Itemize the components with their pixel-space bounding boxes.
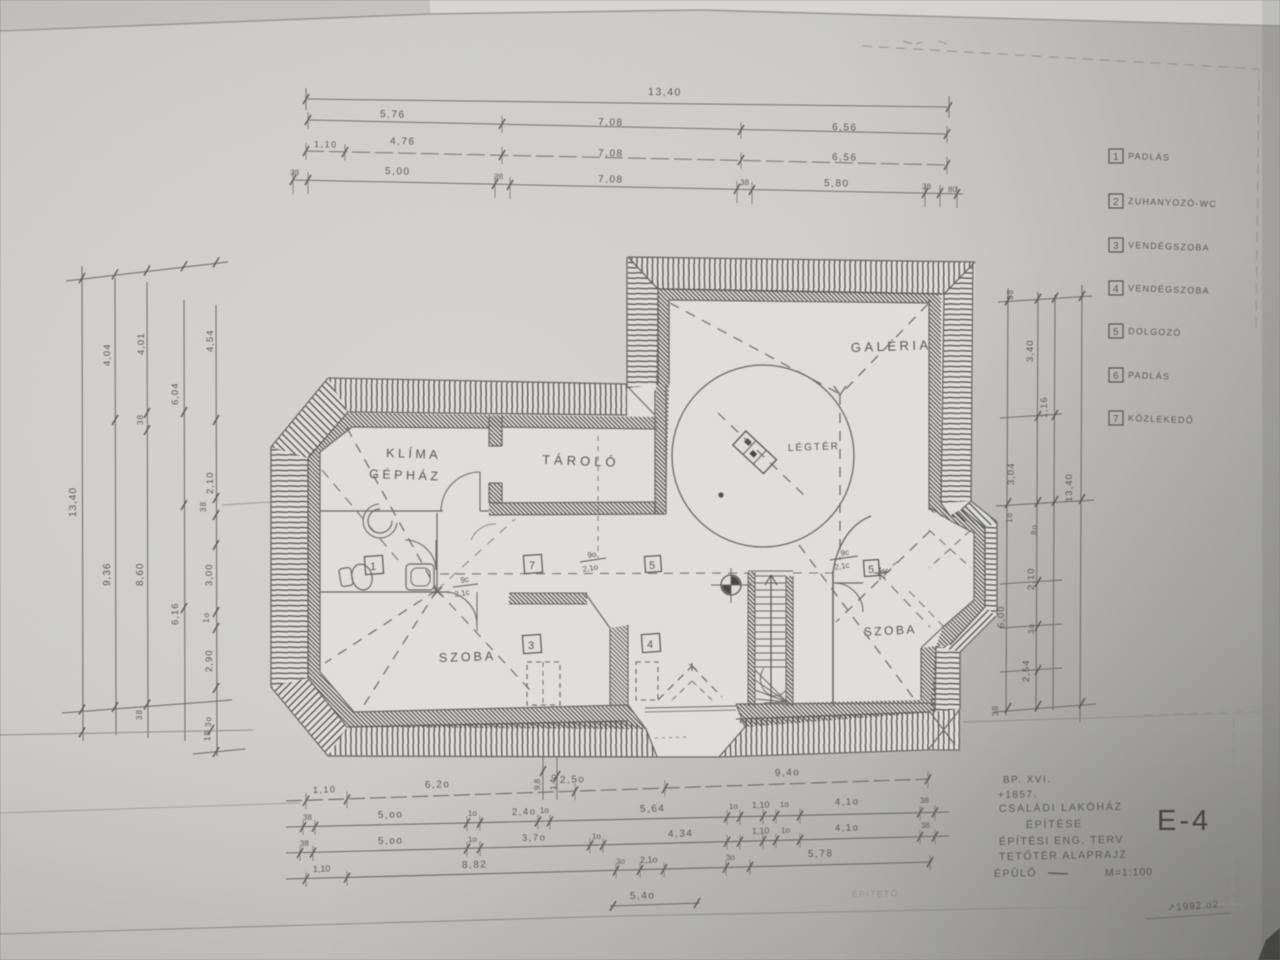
svg-text:1o: 1o: [729, 802, 739, 811]
svg-text:7,08: 7,08: [598, 117, 624, 129]
svg-text:6,56: 6,56: [832, 122, 858, 134]
svg-text:1o: 1o: [468, 809, 478, 818]
svg-text:1o: 1o: [468, 835, 478, 844]
svg-text:ÉPÍTÉSI ENG. TERV: ÉPÍTÉSI ENG. TERV: [999, 833, 1124, 848]
svg-text:5: 5: [868, 564, 874, 576]
svg-text:4,76: 4,76: [390, 136, 416, 148]
svg-text:2,90: 2,90: [204, 650, 215, 673]
svg-text:6,04: 6,04: [170, 383, 181, 406]
svg-text:4,34: 4,34: [668, 828, 694, 840]
svg-text:3,7o: 3,7o: [522, 832, 547, 844]
svg-text:7,08: 7,08: [598, 174, 624, 186]
svg-text:2,1o: 2,1o: [640, 855, 658, 865]
svg-text:GALÉRIA: GALÉRIA: [851, 337, 932, 355]
svg-text:3: 3: [1113, 241, 1119, 252]
svg-text:5,oo: 5,oo: [378, 809, 404, 821]
svg-text:PADLÁS: PADLÁS: [1128, 370, 1170, 381]
svg-text:5,4o: 5,4o: [630, 890, 656, 902]
svg-text:2,10: 2,10: [1026, 568, 1037, 591]
svg-text:DOLGOZÓ: DOLGOZÓ: [1128, 326, 1182, 338]
svg-text:6,16: 6,16: [170, 603, 181, 626]
svg-text:3o: 3o: [1027, 623, 1036, 634]
svg-text:2,4o: 2,4o: [512, 806, 537, 818]
svg-text:38: 38: [136, 414, 145, 425]
svg-text:5: 5: [649, 560, 655, 572]
svg-text:1o: 1o: [540, 806, 550, 815]
svg-text:CSALÁDI LAKÓHÁZ: CSALÁDI LAKÓHÁZ: [999, 800, 1123, 815]
svg-text:2: 2: [1113, 197, 1119, 208]
svg-text:6: 6: [1113, 371, 1119, 382]
svg-text:5,76: 5,76: [380, 109, 406, 121]
svg-text:4,1o: 4,1o: [835, 822, 860, 834]
svg-text:1,16: 1,16: [1039, 396, 1049, 418]
svg-text:3: 3: [528, 640, 534, 652]
svg-text:38: 38: [740, 178, 750, 187]
svg-text:38: 38: [991, 705, 1000, 716]
svg-text:7: 7: [1113, 414, 1119, 425]
svg-text:8o: 8o: [1030, 524, 1039, 535]
svg-text:1o: 1o: [202, 612, 211, 623]
svg-text:E-4: E-4: [1157, 805, 1211, 837]
svg-text:1,10: 1,10: [314, 139, 338, 150]
svg-text:2,5o: 2,5o: [560, 774, 586, 786]
svg-text:2,54: 2,54: [1021, 660, 1032, 683]
svg-text:38: 38: [1006, 289, 1015, 300]
svg-text:9c: 9c: [840, 548, 850, 558]
svg-text:GÉPHÁZ: GÉPHÁZ: [369, 466, 442, 484]
svg-text:TÁROLÓ: TÁROLÓ: [542, 452, 620, 470]
svg-text:80: 80: [948, 185, 958, 194]
svg-text:KLÍMA: KLÍMA: [386, 445, 442, 462]
svg-text:4,54: 4,54: [205, 330, 216, 353]
svg-text:13,40: 13,40: [1064, 473, 1075, 502]
svg-text:4: 4: [647, 639, 653, 651]
svg-text:7: 7: [529, 560, 535, 572]
svg-text:38: 38: [290, 168, 300, 177]
svg-text:4: 4: [1113, 284, 1119, 295]
svg-text:4,01: 4,01: [136, 333, 147, 356]
svg-text:2,10: 2,10: [205, 472, 216, 495]
svg-text:6,2o: 6,2o: [425, 779, 451, 791]
svg-text:3,40: 3,40: [1025, 340, 1036, 363]
svg-text:5,00: 5,00: [385, 166, 411, 178]
svg-text:SZOBA: SZOBA: [439, 649, 497, 665]
svg-text:ÉPÍTÉSE: ÉPÍTÉSE: [1026, 817, 1083, 831]
svg-text:5: 5: [1113, 327, 1119, 338]
svg-text:8,60: 8,60: [135, 563, 146, 586]
svg-text:38: 38: [921, 821, 931, 830]
svg-text:4,04: 4,04: [102, 344, 113, 367]
svg-text:PADLÁS: PADLÁS: [1128, 151, 1170, 162]
svg-text:38: 38: [135, 709, 144, 720]
svg-text:3o: 3o: [616, 857, 626, 866]
svg-text:5,78: 5,78: [808, 848, 834, 860]
svg-text:5,80: 5,80: [824, 178, 850, 190]
svg-text:6,56: 6,56: [832, 152, 858, 164]
svg-text:5,oo: 5,oo: [378, 835, 404, 847]
svg-text:9,8: 9,8: [533, 778, 542, 790]
svg-text:+1857.: +1857.: [998, 789, 1038, 801]
svg-text:SZOBA: SZOBA: [863, 622, 917, 639]
svg-text:1,4o: 1,4o: [549, 774, 558, 790]
svg-text:38: 38: [922, 182, 932, 191]
svg-text:4,1o: 4,1o: [835, 796, 860, 808]
svg-text:9c: 9c: [460, 575, 470, 585]
svg-text:ÉPÜLŐ: ÉPÜLŐ: [994, 865, 1037, 880]
svg-text:3,00: 3,00: [204, 564, 215, 587]
svg-text:38: 38: [494, 172, 504, 181]
svg-text:8,82: 8,82: [462, 859, 488, 871]
svg-text:38: 38: [303, 813, 313, 822]
svg-text:1o: 1o: [781, 826, 791, 835]
svg-text:1o: 1o: [1005, 512, 1014, 523]
svg-text:13,40: 13,40: [648, 86, 682, 99]
svg-text:3,04: 3,04: [1006, 463, 1017, 486]
svg-text:3o: 3o: [726, 853, 736, 862]
svg-text:9,36: 9,36: [102, 563, 113, 586]
svg-text:1,10: 1,10: [313, 864, 331, 874]
svg-text:1,10: 1,10: [752, 826, 770, 836]
svg-text:18: 18: [203, 730, 212, 741]
svg-text:1,10: 1,10: [313, 784, 337, 795]
svg-text:3o: 3o: [204, 716, 213, 727]
svg-text:1: 1: [370, 561, 376, 573]
svg-text:38: 38: [300, 839, 310, 848]
svg-text:38: 38: [920, 796, 930, 805]
svg-text:5,64: 5,64: [640, 803, 666, 815]
svg-text:7,08: 7,08: [598, 148, 624, 160]
svg-text:1o: 1o: [780, 800, 790, 809]
svg-text:13,40: 13,40: [68, 487, 79, 517]
svg-text:9,4o: 9,4o: [775, 767, 801, 779]
svg-text:ÉPÍTETŐ: ÉPÍTETŐ: [852, 888, 899, 899]
svg-text:BP. XVI.: BP. XVI.: [1003, 774, 1052, 786]
svg-text:1o: 1o: [592, 832, 602, 841]
svg-text:1: 1: [1113, 152, 1119, 163]
svg-text:M=1:100: M=1:100: [1105, 866, 1153, 879]
svg-text:38: 38: [199, 501, 208, 512]
svg-text:1,10: 1,10: [752, 800, 770, 810]
